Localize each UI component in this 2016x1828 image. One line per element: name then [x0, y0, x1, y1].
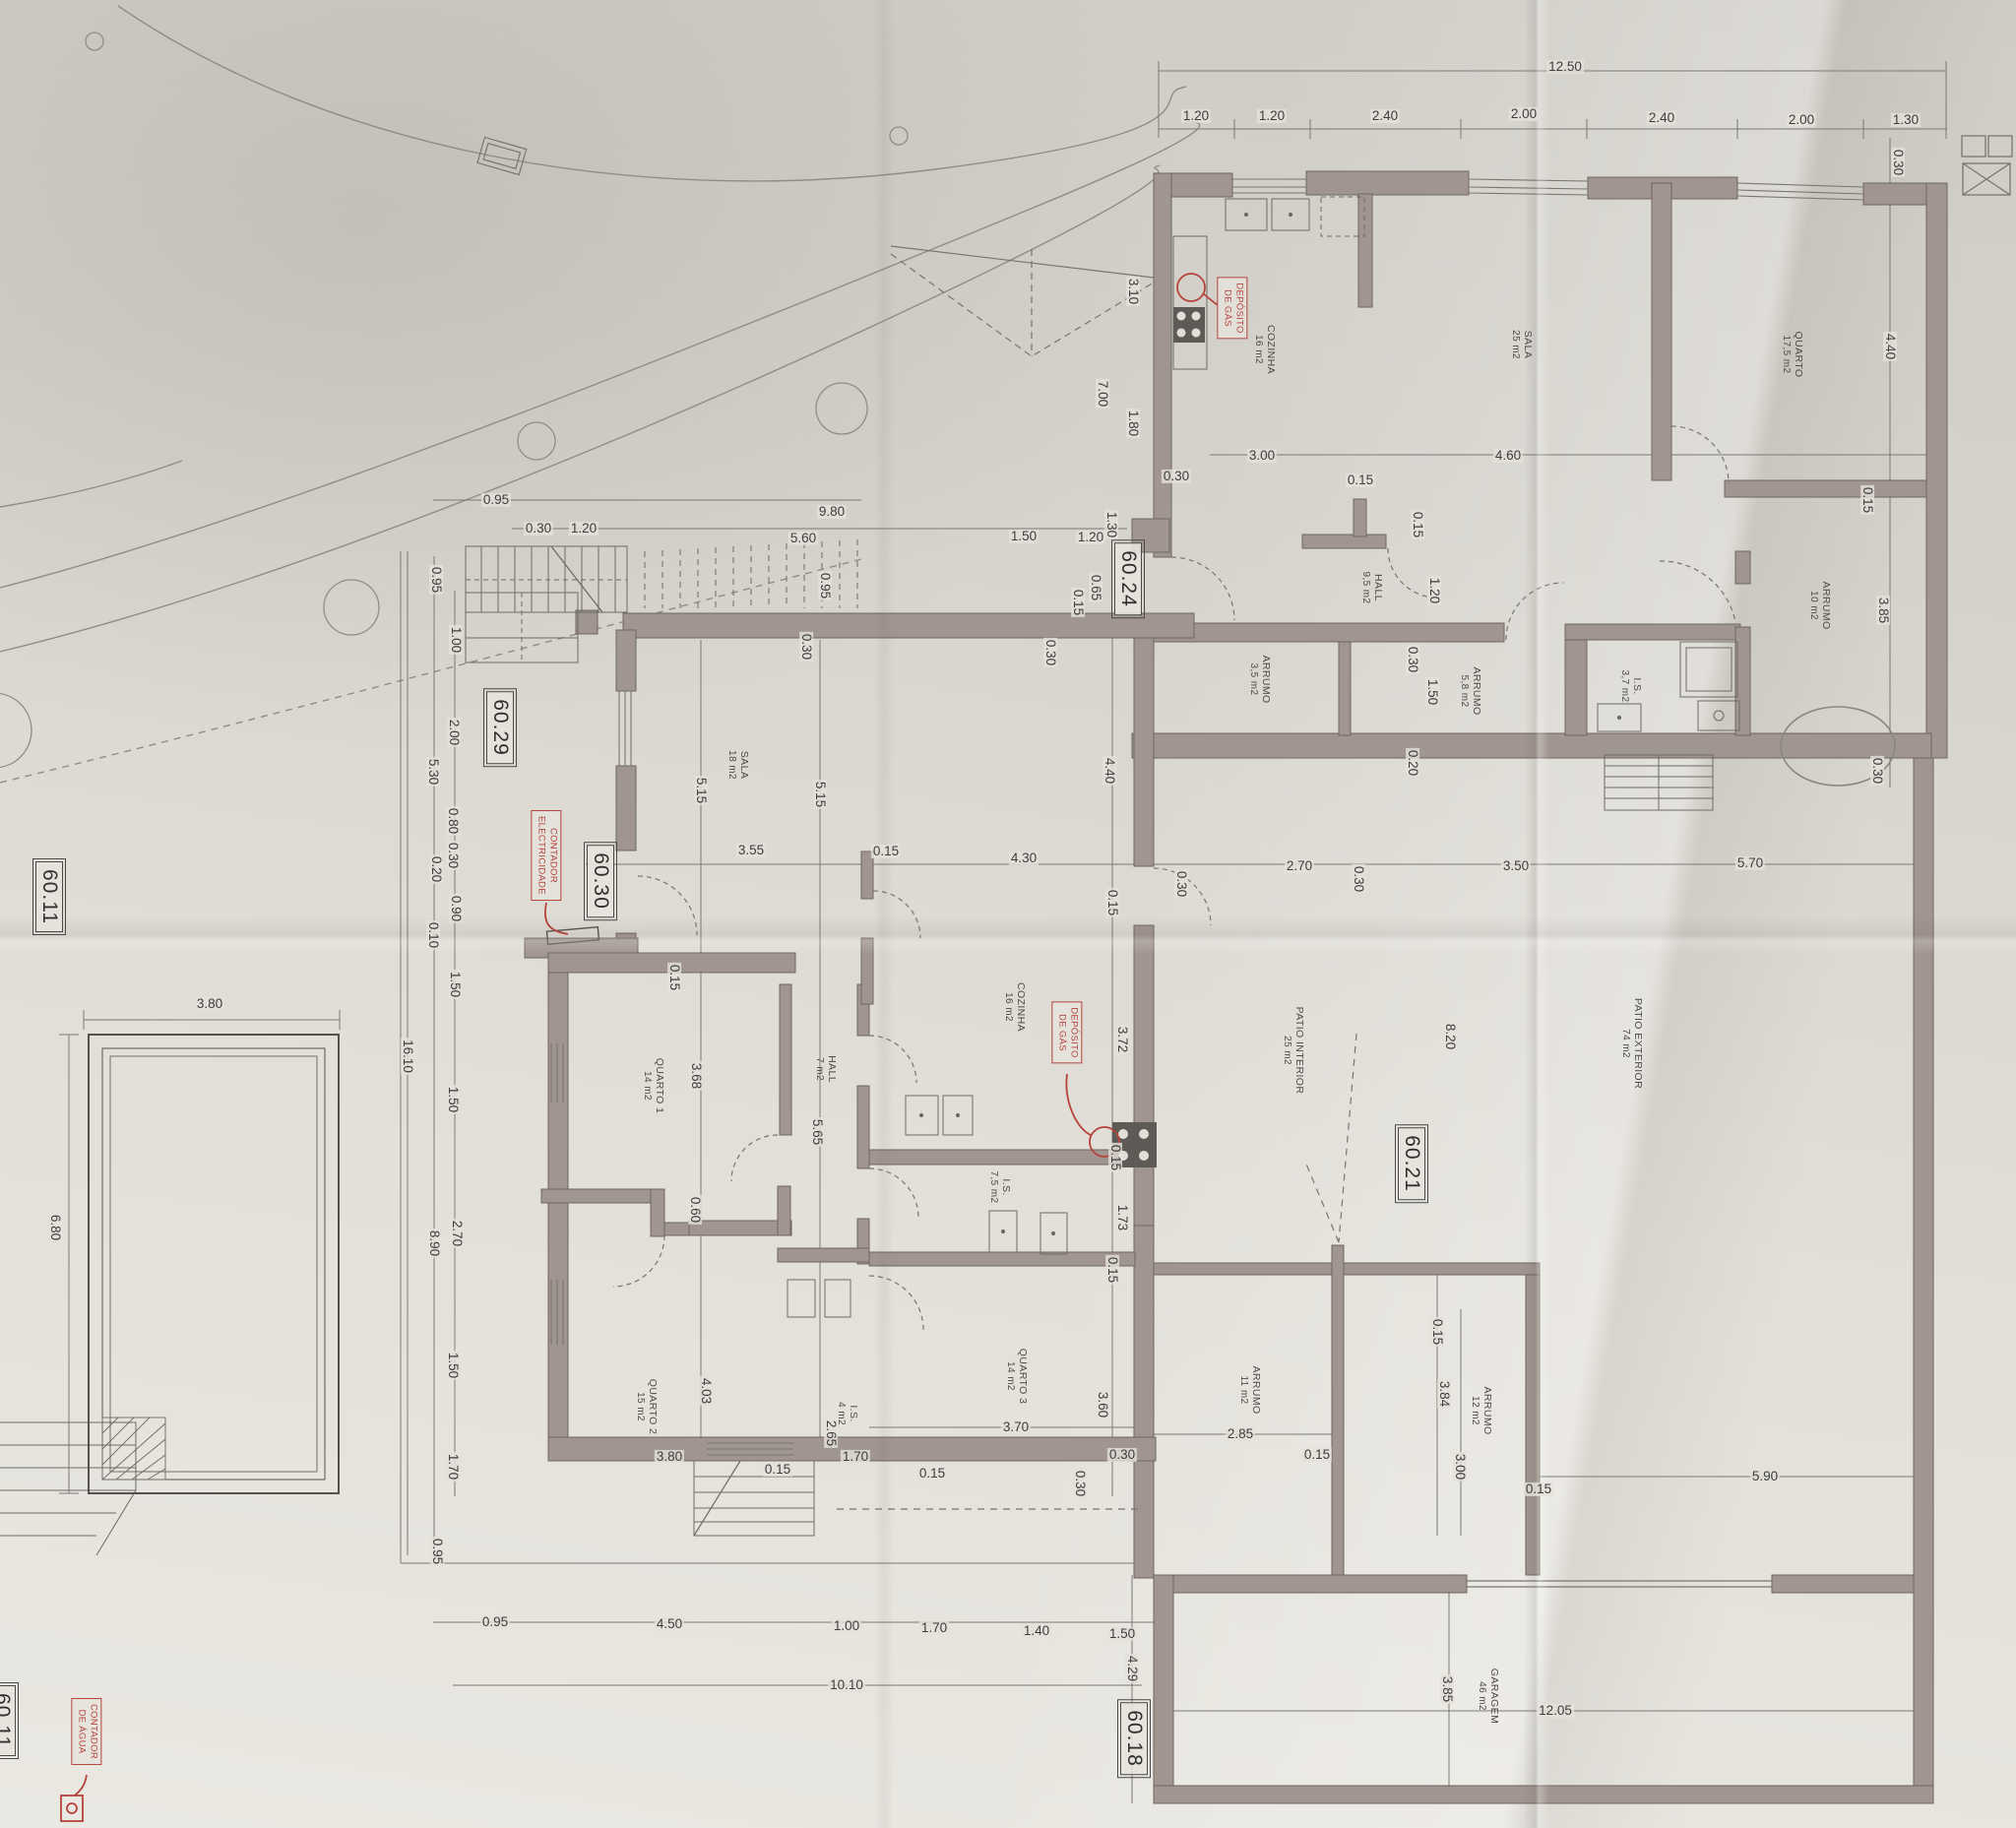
dimension-label: 5.90: [1750, 1470, 1780, 1483]
dimension-label: 2.70: [1285, 859, 1314, 873]
dimension-label: 0.15: [1860, 485, 1874, 515]
level-marker: 60.30: [587, 845, 614, 917]
room-label: SALA25 m2: [1508, 330, 1534, 359]
dimension-label: 0.30: [1870, 756, 1884, 786]
dimension-label: 0.15: [1105, 888, 1119, 917]
room-label: QUARTO 314 m2: [1003, 1349, 1029, 1405]
dimension-label: 3.50: [1501, 859, 1531, 873]
dimension-label: 1.50: [1009, 530, 1039, 543]
dimension-label: 0.90: [449, 894, 463, 923]
dimension-label: 1.50: [446, 1351, 460, 1380]
dimension-label: 0.15: [1430, 1317, 1444, 1347]
dimension-label: 4.29: [1125, 1654, 1139, 1683]
dimension-label: 2.00: [1509, 107, 1539, 121]
dimension-label: 0.30: [1891, 148, 1905, 177]
dimension-label: 0.15: [1346, 473, 1375, 487]
dimension-label: 1.70: [841, 1450, 870, 1464]
dimension-label: 10.10: [828, 1678, 865, 1692]
dimension-label: 1.20: [569, 522, 598, 536]
dimension-label: 3.68: [689, 1061, 703, 1091]
room-label: ARRUMO12 m2: [1468, 1386, 1493, 1434]
dimension-label: 5.30: [426, 757, 440, 787]
dimension-label: 1.80: [1126, 409, 1140, 438]
dimension-label: 0.95: [430, 1537, 444, 1566]
dimension-label: 1.20: [1181, 109, 1211, 123]
room-label: HALL9,5 m2: [1358, 572, 1384, 604]
room-label: I.S.7,5 m2: [986, 1171, 1012, 1204]
floor-plan-drawing: [0, 0, 2016, 1828]
dimension-label: 1.20: [1257, 109, 1287, 123]
dimension-label: 1.70: [446, 1452, 460, 1481]
dimension-label: 2.70: [450, 1219, 464, 1248]
dimension-label: 0.15: [1071, 588, 1085, 617]
dimension-label: 1.20: [1427, 576, 1441, 605]
dimension-label: 3.10: [1126, 277, 1140, 306]
dimension-label: 0.15: [1302, 1448, 1332, 1462]
dimension-label: 3.00: [1247, 449, 1277, 463]
dimension-label: 0.15: [763, 1463, 792, 1477]
room-label: I.S.3,7 m2: [1617, 670, 1643, 703]
dimension-label: 8.90: [427, 1229, 441, 1258]
dimension-label: 1.50: [1425, 677, 1439, 707]
dimension-label: 1.00: [449, 625, 463, 655]
dimension-label: 1.50: [448, 970, 462, 999]
room-label: ARRUMO10 m2: [1806, 581, 1832, 629]
dimension-label: 3.70: [1001, 1420, 1031, 1434]
dimension-label: 2.85: [1226, 1427, 1255, 1441]
dimension-label: 0.30: [799, 632, 813, 662]
pool: [89, 1035, 339, 1493]
dimension-label: 1.20: [1076, 531, 1105, 544]
dimension-label: 3.00: [1453, 1452, 1467, 1481]
dimension-label: 0.95: [481, 493, 511, 507]
dimension-label: 0.30: [1406, 645, 1419, 674]
patio-garage-walls: [1154, 758, 1933, 1803]
dimension-label: 0.95: [429, 565, 443, 595]
level-marker: 60.24: [1114, 542, 1142, 615]
dimension-label: 3.85: [1876, 596, 1890, 625]
dimension-label: 3.80: [195, 997, 224, 1011]
dimension-label: 4.60: [1493, 449, 1523, 463]
dimension-label: 16.10: [401, 1038, 414, 1075]
dimension-label: 6.80: [48, 1213, 62, 1242]
dimension-label: 0.10: [426, 920, 440, 950]
red-annotation-box: DEPÓSITO DE GÁS: [1052, 1001, 1083, 1063]
red-annotation-box: DEPÓSITO DE GÁS: [1218, 277, 1248, 339]
room-label: QUARTO 215 m2: [633, 1379, 659, 1435]
dimension-label: 3.60: [1096, 1390, 1109, 1419]
dimension-label: 8.20: [1443, 1022, 1457, 1051]
dimension-label: 12.50: [1546, 60, 1584, 74]
main-house-windows: [551, 691, 793, 1455]
dimension-label: 4.40: [1102, 756, 1116, 786]
dimension-label: 1.73: [1115, 1203, 1129, 1232]
stairs-top-left: [466, 546, 627, 662]
corner-symbols: [1962, 136, 2012, 195]
dimension-label: 0.30: [1043, 638, 1057, 667]
dimension-label: 5.70: [1735, 856, 1765, 870]
dimension-label: 5.60: [788, 532, 818, 545]
room-label: PATIO EXTERIOR74 m2: [1618, 998, 1644, 1089]
room-label: SALA18 m2: [724, 750, 750, 780]
dimension-label: 12.05: [1537, 1704, 1574, 1718]
room-label: GARAGEM46 m2: [1475, 1669, 1500, 1724]
level-marker: 60.29: [486, 691, 514, 764]
dimension-label: 2.40: [1370, 109, 1400, 123]
steps-south-west: [0, 1422, 136, 1555]
stove-icon-upper: [1173, 307, 1205, 343]
dimension-label: 0.80: [446, 806, 460, 836]
dimension-label: 0.30: [1107, 1448, 1137, 1462]
dimension-label: 1.70: [919, 1621, 949, 1635]
dimension-label: 1.30: [1891, 113, 1921, 127]
dimension-label: 4.30: [1009, 851, 1039, 865]
dimension-label: 0.15: [1524, 1482, 1553, 1496]
dimension-label: 0.30: [524, 522, 553, 536]
room-label: PATIO INTERIOR25 m2: [1280, 1007, 1305, 1095]
dimension-label: 0.15: [1105, 1255, 1119, 1285]
dimension-label: 0.15: [1411, 510, 1424, 539]
cozinha-fixtures: [787, 1096, 1067, 1317]
dimension-label: 4.40: [1883, 332, 1897, 361]
dimension-label: 0.95: [480, 1615, 510, 1629]
dimension-label: 9.80: [817, 505, 847, 519]
room-label: COZINHA16 m2: [1251, 325, 1277, 374]
dimension-label: 4.50: [655, 1617, 684, 1631]
dimension-label: 3.72: [1115, 1025, 1129, 1054]
stairs-upper-right: [1605, 755, 1713, 810]
dimension-label: 0.15: [667, 963, 681, 992]
dimension-label: 0.30: [446, 841, 460, 870]
dimension-label: 1.00: [832, 1619, 861, 1633]
dimension-label: 0.15: [917, 1467, 947, 1481]
dimension-label: 5.15: [813, 780, 827, 809]
site-road-curves: [0, 6, 1200, 783]
garage-door-line: [1467, 1581, 1772, 1587]
dimension-label: 3.85: [1440, 1674, 1454, 1704]
dimension-label: 0.30: [1162, 470, 1191, 483]
dimension-label: 0.30: [1174, 869, 1188, 899]
dimension-label: 2.40: [1647, 111, 1676, 125]
red-annotation-box: CONTADOR DE ÁGUA: [72, 1698, 102, 1765]
red-annotation-symbols: [61, 274, 1218, 1821]
dimension-label: 3.80: [655, 1450, 684, 1464]
dimension-label: 1.50: [446, 1085, 460, 1114]
dimension-label: 3.55: [736, 844, 766, 857]
room-label: COZINHA16 m2: [1001, 982, 1027, 1032]
dimension-label: 5.65: [810, 1117, 824, 1147]
dimension-label: 1.30: [1104, 510, 1118, 539]
level-marker: 60.18: [1120, 1702, 1148, 1775]
utility-symbol-rect: [477, 137, 527, 174]
dimension-label: 0.15: [1108, 1143, 1122, 1172]
dimension-label: 5.15: [694, 776, 708, 805]
dimension-label: 0.30: [1352, 864, 1365, 894]
dimension-label: 2.00: [1787, 113, 1816, 127]
level-marker: 60.11: [0, 1685, 16, 1756]
room-label: ARRUMO3,5 m2: [1246, 655, 1272, 703]
level-marker: 60.21: [1398, 1127, 1425, 1200]
room-label: ARRUMO5,8 m2: [1457, 666, 1482, 715]
dimension-label: 3.84: [1437, 1379, 1451, 1409]
room-label: ARRUMO11 m2: [1236, 1365, 1262, 1414]
dimension-label: 1.40: [1022, 1624, 1051, 1638]
dimension-label: 0.20: [429, 854, 443, 884]
dimension-label: 0.30: [1073, 1469, 1087, 1498]
room-label: HALL7 m2: [812, 1055, 838, 1083]
floor-plan-photo: COZINHA16 m2SALA25 m2QUARTO17,5 m2ARRUMO…: [0, 0, 2016, 1828]
steps-south-entry: [694, 1461, 814, 1536]
dimension-label: 1.50: [1107, 1627, 1137, 1641]
room-label: QUARTO17,5 m2: [1779, 332, 1804, 378]
dimension-label: 0.20: [1406, 748, 1419, 778]
dimension-label: 0.60: [688, 1195, 702, 1225]
room-label: QUARTO 114 m2: [640, 1058, 665, 1114]
dimension-label: 7.00: [1096, 379, 1109, 409]
dimension-label: 0.15: [871, 845, 901, 858]
red-annotation-box: CONTADOR ELECTRICIDADE: [532, 810, 562, 901]
site-circles: [0, 32, 908, 768]
dimension-label: 2.65: [824, 1418, 838, 1448]
dimension-label: 2.00: [447, 718, 461, 747]
canopy-dashed: [891, 246, 1154, 356]
level-marker: 60.11: [35, 861, 63, 932]
dimension-label: 4.03: [699, 1376, 713, 1406]
pool-corner-hatch: [102, 1418, 165, 1480]
dimension-label: 0.95: [818, 571, 832, 600]
dimension-label: 0.65: [1089, 573, 1102, 602]
